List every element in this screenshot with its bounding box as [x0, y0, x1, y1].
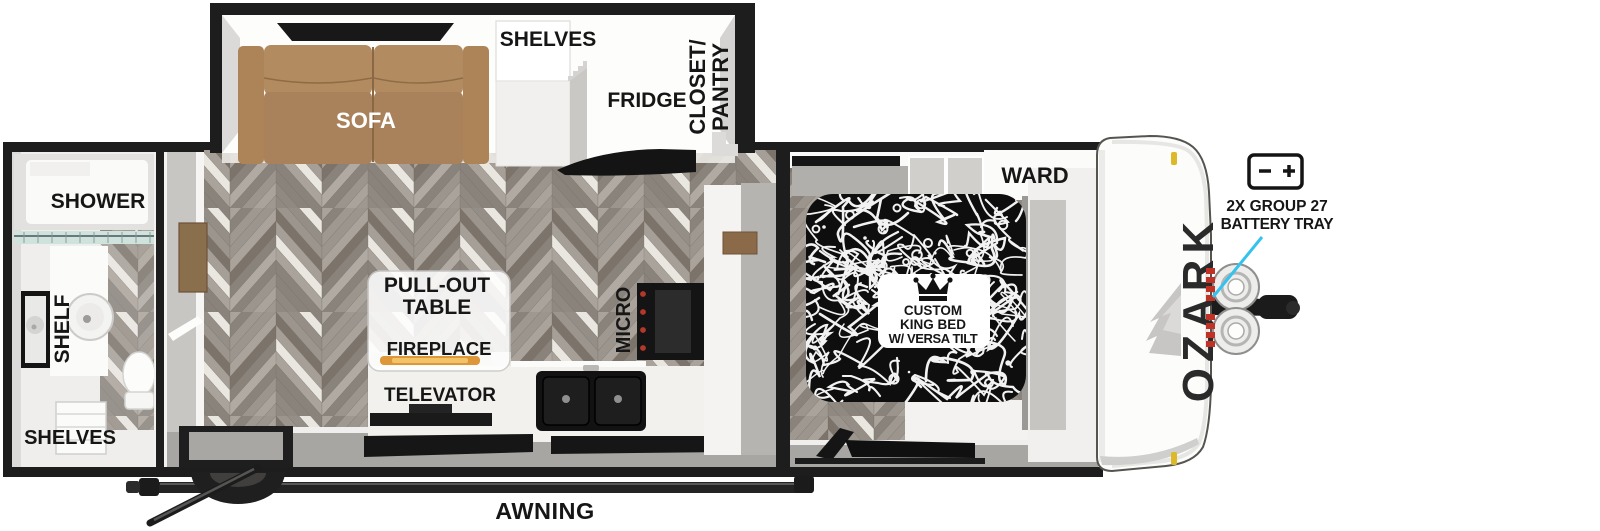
svg-text:2X GROUP 27: 2X GROUP 27 [1226, 198, 1327, 215]
svg-text:PULL-OUT: PULL-OUT [384, 274, 490, 297]
svg-text:SHELF: SHELF [51, 294, 74, 363]
svg-text:KING BED: KING BED [900, 317, 966, 332]
svg-text:TELEVATOR: TELEVATOR [384, 385, 496, 406]
svg-text:SHELVES: SHELVES [24, 427, 116, 449]
svg-text:AWNING: AWNING [495, 498, 595, 524]
svg-text:CUSTOM: CUSTOM [904, 303, 962, 318]
svg-text:BATTERY TRAY: BATTERY TRAY [1221, 216, 1335, 233]
svg-text:TABLE: TABLE [403, 296, 471, 319]
svg-text:PANTRY: PANTRY [708, 43, 733, 131]
svg-text:CLOSET/: CLOSET/ [685, 39, 710, 134]
svg-text:FIREPLACE: FIREPLACE [387, 338, 492, 359]
svg-text:SHOWER: SHOWER [51, 190, 146, 213]
svg-text:FRIDGE: FRIDGE [607, 89, 686, 112]
svg-text:WARD: WARD [1001, 163, 1068, 188]
svg-text:SOFA: SOFA [336, 108, 396, 133]
svg-text:W/ VERSA TILT: W/ VERSA TILT [889, 331, 978, 346]
svg-text:SHELVES: SHELVES [500, 28, 596, 51]
svg-text:MICRO: MICRO [613, 287, 635, 354]
